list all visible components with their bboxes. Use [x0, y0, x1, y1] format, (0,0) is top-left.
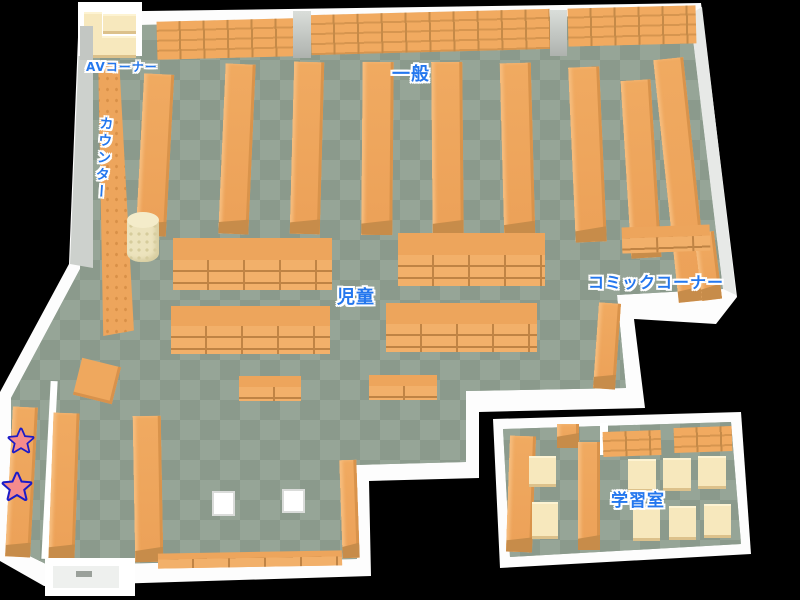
- wall-bookshelf: [339, 460, 359, 559]
- bookshelf-row: [361, 62, 394, 235]
- childrens-low-table: [369, 375, 437, 400]
- label-av-corner: AVコーナー: [86, 58, 158, 75]
- wall-bookshelf: [311, 9, 551, 55]
- entrance-door: [76, 571, 92, 577]
- bookshelf-row: [48, 413, 79, 560]
- star-marker-icon: [1, 471, 33, 503]
- entrance: [45, 558, 135, 596]
- study-table: [633, 507, 660, 541]
- bookshelf-row: [431, 62, 464, 235]
- comic-low-bookshelf: [622, 224, 711, 253]
- entrance-floor: [53, 566, 119, 588]
- study-room-wall-shelf: [603, 430, 662, 457]
- childrens-bookshelf: [171, 306, 330, 354]
- table: [282, 489, 305, 513]
- study-table: [663, 458, 691, 491]
- av-corner-equipment: [80, 26, 93, 60]
- table: [212, 491, 235, 516]
- study-room-wall-shelf: [674, 426, 733, 453]
- bookshelf-row: [133, 416, 164, 562]
- study-table: [669, 506, 696, 540]
- av-corner-desk: [103, 14, 136, 34]
- av-corner-desk: [102, 36, 136, 58]
- label-children-area: 児童: [337, 283, 375, 309]
- star-marker-icon: [7, 427, 35, 455]
- wall-bookshelf: [158, 550, 342, 568]
- bookshelf-row: [500, 63, 536, 237]
- pillar: [293, 11, 311, 58]
- childrens-bookshelf: [173, 238, 332, 290]
- label-general-area: 一般: [392, 60, 430, 86]
- childrens-bookshelf: [398, 233, 545, 286]
- wall-bookshelf: [568, 5, 697, 46]
- study-room-divider-shelf: [578, 442, 600, 550]
- library-floor-map: AVコーナー 一般 カウンター 児童 コミックコーナー 学習室: [0, 0, 800, 600]
- bookshelf-row: [290, 62, 324, 235]
- childrens-low-table: [239, 376, 301, 401]
- study-table: [698, 456, 726, 489]
- label-study-room: 学習室: [611, 486, 665, 511]
- study-table: [532, 502, 558, 539]
- childrens-bookshelf: [386, 303, 537, 352]
- label-comic-corner: コミックコーナー: [588, 269, 724, 293]
- book-spinner-rack: [127, 214, 159, 262]
- wall-bookshelf: [157, 18, 295, 60]
- study-table: [704, 504, 731, 538]
- pillar: [550, 10, 567, 56]
- study-table: [529, 456, 556, 487]
- study-room-bookshelf: [557, 424, 579, 448]
